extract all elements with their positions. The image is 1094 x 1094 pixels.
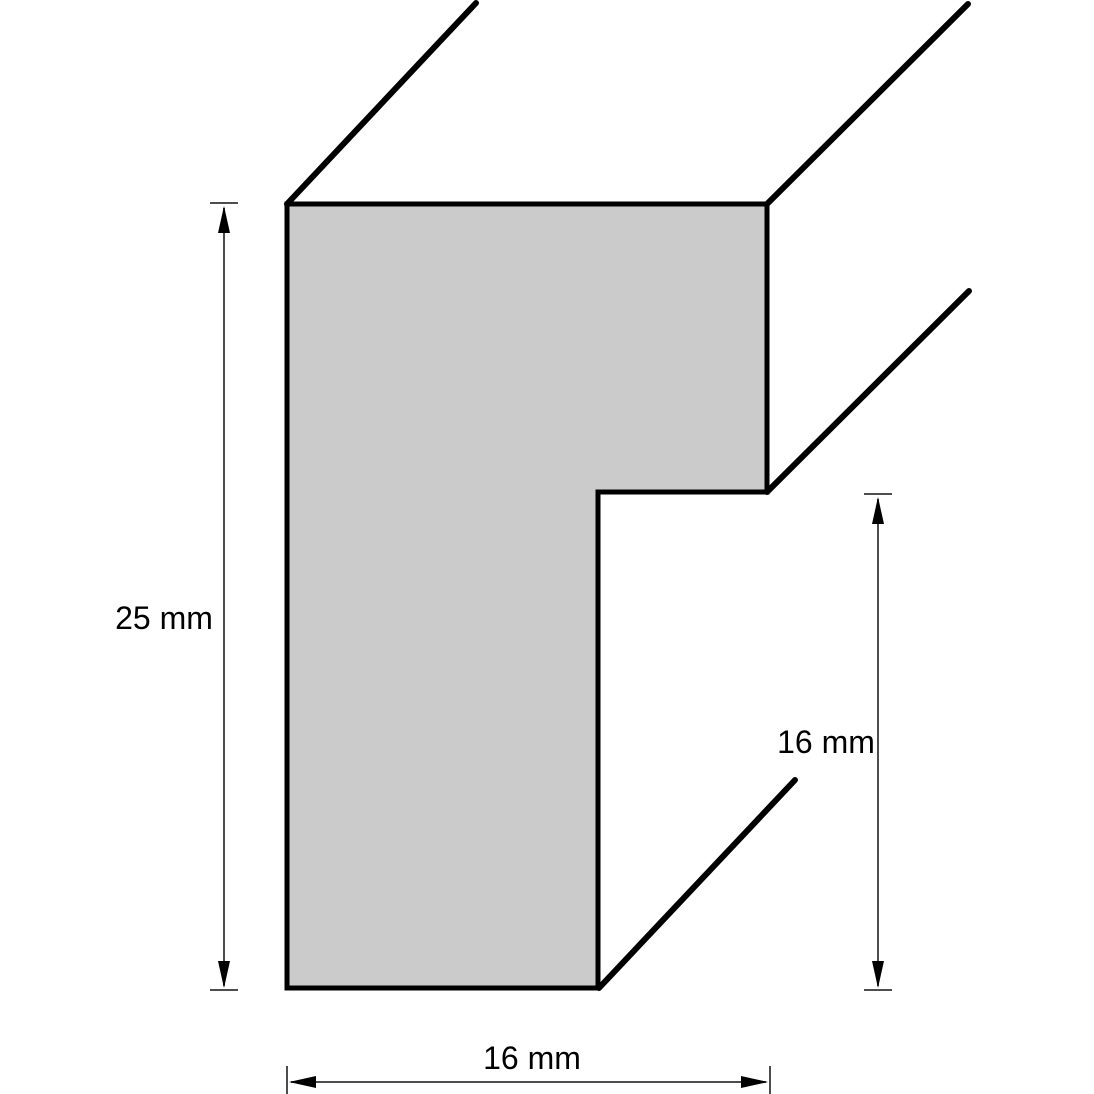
arrowhead-up-icon xyxy=(218,206,230,233)
projection-line-top-right xyxy=(767,4,968,204)
projection-line-bottom-right xyxy=(599,780,795,988)
projection-line-rabbet-corner xyxy=(767,291,969,492)
projection-line-top-left xyxy=(287,3,476,204)
technical-drawing-canvas: 25 mm 16 mm 16 mm xyxy=(0,0,1094,1094)
arrowhead-down-icon xyxy=(872,961,884,988)
dimension-height-left: 25 mm xyxy=(115,203,238,990)
arrowhead-left-icon xyxy=(289,1076,316,1088)
dimension-label-rabbet: 16 mm xyxy=(777,724,875,760)
dimension-rabbet-right: 16 mm xyxy=(777,494,892,990)
profile-cross-section-shape xyxy=(287,204,767,988)
dimension-label-height: 25 mm xyxy=(115,600,213,636)
arrowhead-down-icon xyxy=(218,961,230,988)
moulding-cross-section-drawing: 25 mm 16 mm 16 mm xyxy=(0,0,1094,1094)
dimension-width-bottom: 16 mm xyxy=(287,1040,770,1094)
dimension-label-width: 16 mm xyxy=(483,1040,581,1076)
arrowhead-up-icon xyxy=(872,497,884,524)
arrowhead-right-icon xyxy=(741,1076,768,1088)
